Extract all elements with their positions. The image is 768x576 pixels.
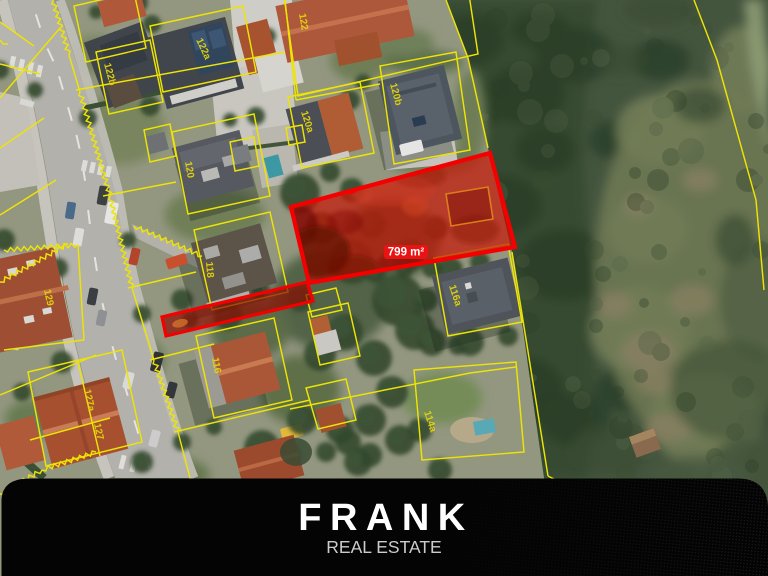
- svg-text:FRANK: FRANK: [298, 497, 473, 539]
- svg-text:799 m²: 799 m²: [388, 247, 425, 259]
- svg-text:118: 118: [203, 261, 215, 278]
- svg-text:REAL ESTATE: REAL ESTATE: [326, 537, 441, 557]
